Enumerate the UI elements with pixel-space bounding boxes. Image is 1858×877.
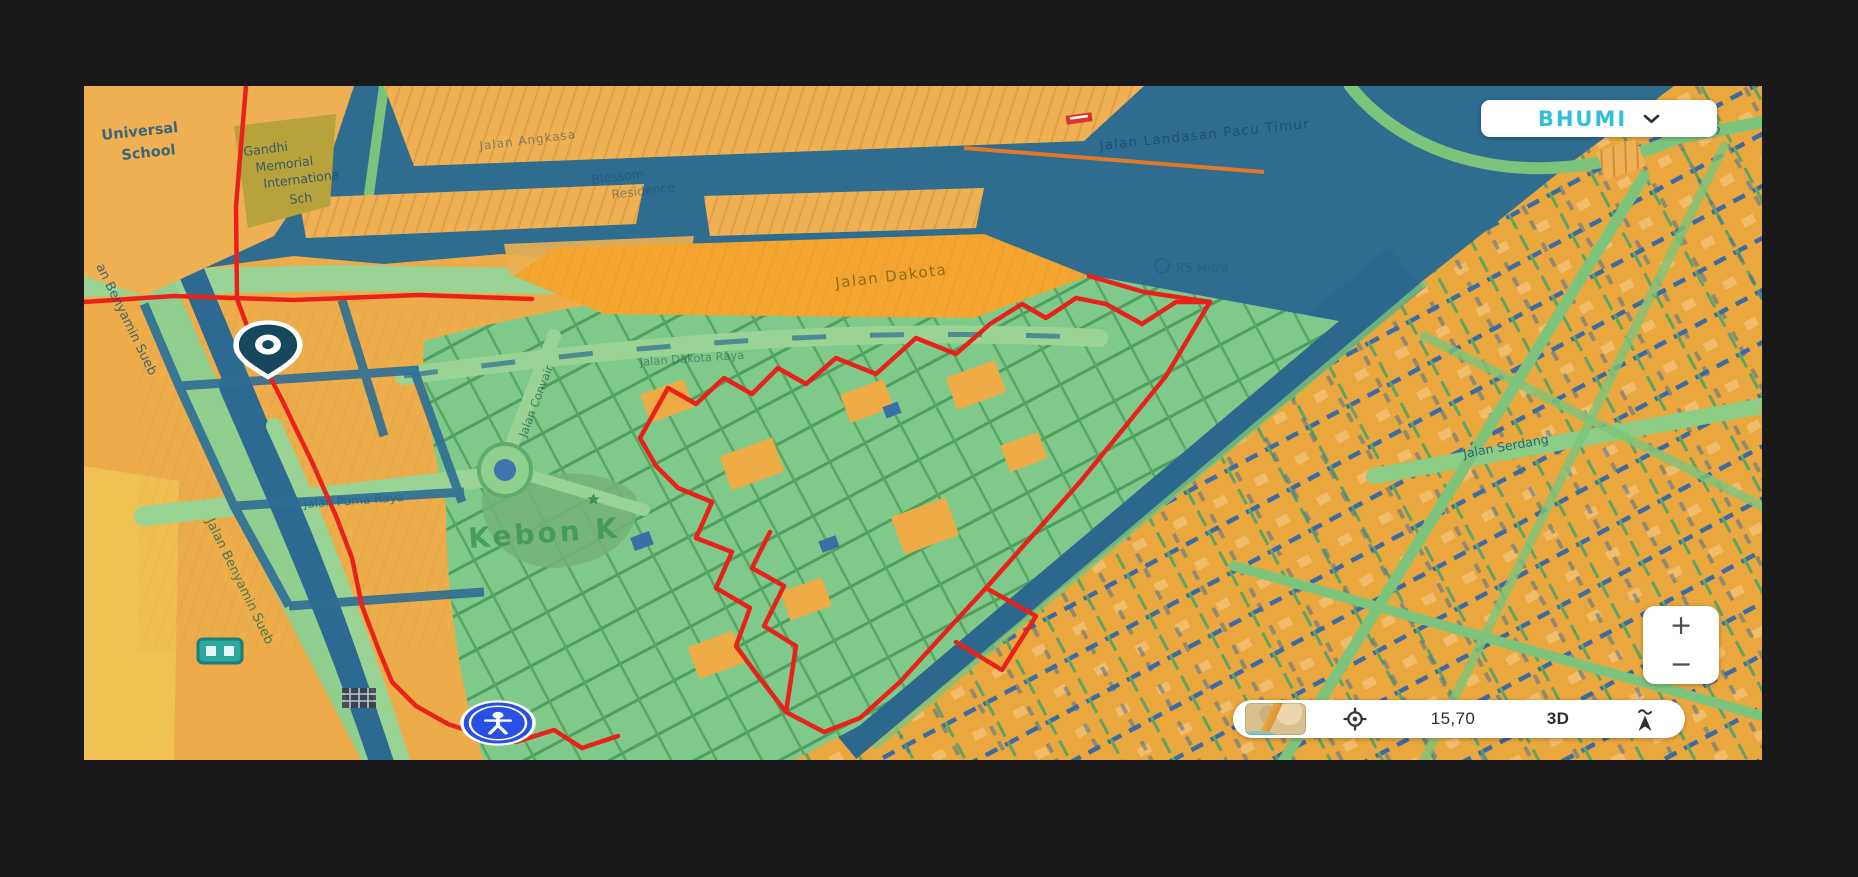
roundabout [479, 444, 531, 496]
style-switcher-button[interactable]: BHUMI [1481, 100, 1717, 137]
crosshair-target-icon [1343, 707, 1367, 731]
toggle-3d-button[interactable]: 3D [1539, 700, 1577, 738]
map-canvas[interactable]: Universal School Gandhi Memorial Interna… [84, 86, 1762, 760]
chevron-down-icon [1643, 114, 1660, 124]
locate-button[interactable] [1337, 700, 1373, 738]
svg-text:RS Mitra: RS Mitra [1176, 260, 1229, 275]
building-icon [342, 688, 376, 708]
basemap-thumbnail[interactable] [1245, 703, 1306, 735]
pedestrian-marker[interactable] [462, 701, 534, 744]
app-window: Universal School Gandhi Memorial Interna… [0, 0, 1858, 877]
bhumi-logo: BHUMI [1538, 107, 1627, 131]
north-arrow-icon [1633, 706, 1657, 733]
zoom-control: + − [1643, 606, 1719, 684]
svg-text:Sch: Sch [289, 189, 313, 207]
zoom-out-button[interactable]: − [1643, 645, 1719, 684]
zoom-in-button[interactable]: + [1643, 606, 1719, 645]
dakota-block-texture [514, 234, 1089, 318]
map-status-bar: 15,70 3D [1233, 700, 1685, 738]
transit-station-icon [198, 639, 242, 663]
zoom-level-value: 15,70 [1421, 700, 1485, 738]
compass-button[interactable] [1627, 700, 1663, 738]
map-rendering: Universal School Gandhi Memorial Interna… [84, 86, 1762, 760]
